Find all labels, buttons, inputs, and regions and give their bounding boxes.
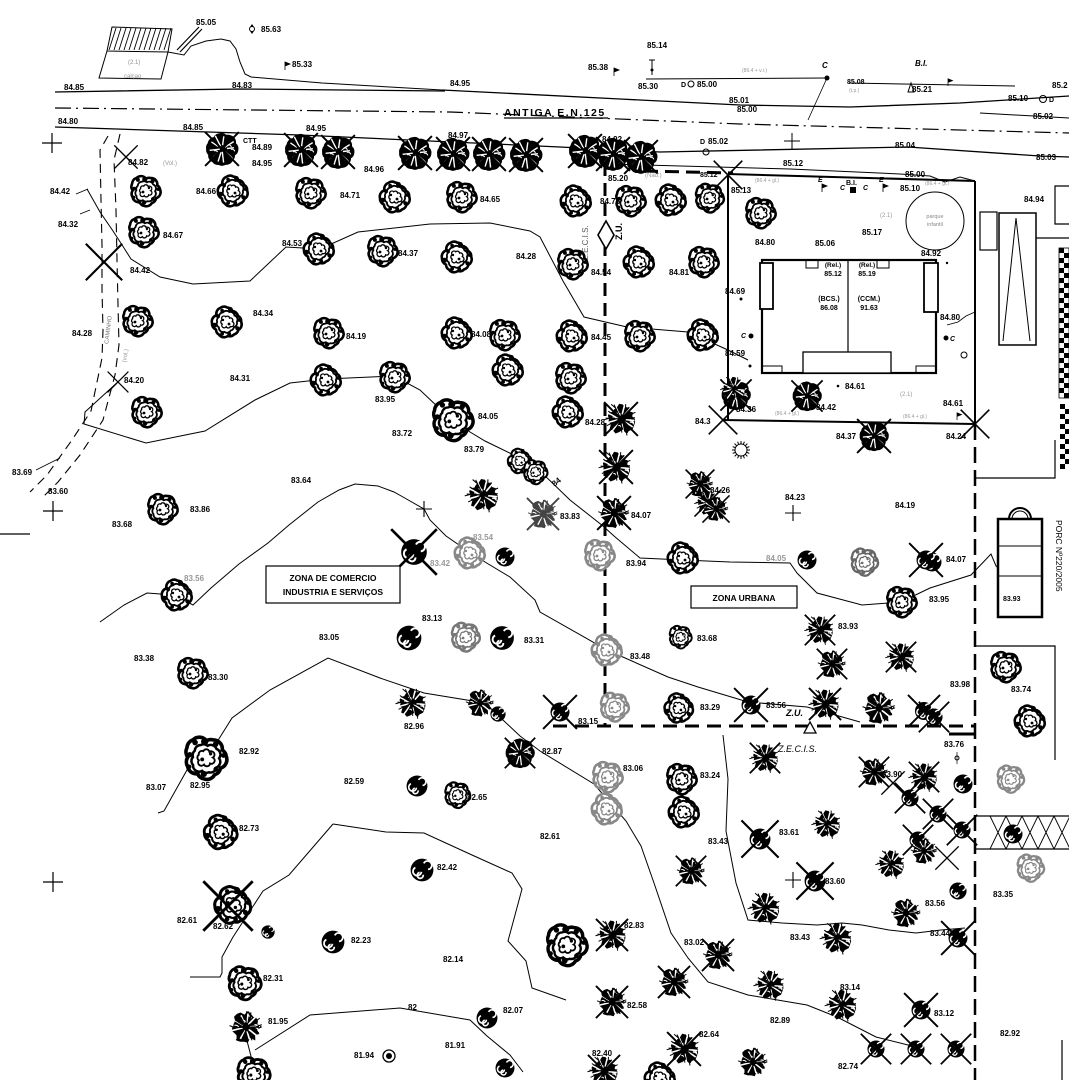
svg-text:84.89: 84.89 [252, 143, 273, 152]
svg-text:84.92: 84.92 [921, 249, 942, 258]
svg-text:82.73: 82.73 [239, 824, 260, 833]
svg-text:84.23: 84.23 [785, 493, 806, 502]
svg-text:C: C [822, 61, 828, 70]
svg-text:81.94: 81.94 [354, 1051, 375, 1060]
svg-text:84.28: 84.28 [72, 329, 93, 338]
svg-text:ANTIGA E.N.125: ANTIGA E.N.125 [504, 107, 606, 119]
svg-text:83.68: 83.68 [697, 634, 718, 643]
svg-text:84.05: 84.05 [478, 412, 499, 421]
svg-text:85.12: 85.12 [824, 271, 842, 278]
svg-text:84.83: 84.83 [232, 81, 253, 90]
svg-text:84.45: 84.45 [591, 333, 612, 342]
svg-text:83.35: 83.35 [993, 890, 1014, 899]
svg-text:84.24: 84.24 [946, 432, 967, 441]
svg-text:ZONA URBANA: ZONA URBANA [713, 593, 776, 603]
svg-text:82.89: 82.89 [770, 1016, 791, 1025]
svg-text:81.91: 81.91 [445, 1041, 466, 1050]
svg-text:83.48: 83.48 [630, 652, 651, 661]
svg-text:85.33: 85.33 [292, 60, 313, 69]
svg-text:84.95: 84.95 [306, 124, 327, 133]
svg-text:83.93: 83.93 [1003, 596, 1021, 603]
svg-text:(CCM.): (CCM.) [858, 296, 881, 303]
svg-text:85.00: 85.00 [905, 170, 926, 179]
svg-text:84.80: 84.80 [940, 313, 961, 322]
svg-text:83.38: 83.38 [134, 654, 155, 663]
svg-text:(BCS.): (BCS.) [818, 296, 839, 303]
svg-text:85.06: 85.06 [815, 239, 836, 248]
svg-text:D: D [1049, 97, 1054, 104]
svg-text:84.59: 84.59 [725, 349, 746, 358]
svg-text:84.05: 84.05 [766, 554, 787, 563]
svg-text:83.95: 83.95 [929, 595, 950, 604]
svg-text:84.54: 84.54 [591, 268, 612, 277]
svg-text:82.87: 82.87 [542, 747, 563, 756]
svg-text:ZONA DE COMERCIO: ZONA DE COMERCIO [289, 573, 376, 583]
svg-text:84.95: 84.95 [252, 159, 273, 168]
svg-text:82.74: 82.74 [838, 1062, 859, 1071]
svg-text:84.96: 84.96 [364, 165, 385, 174]
svg-text:85.21: 85.21 [912, 85, 933, 94]
svg-text:83.56: 83.56 [184, 574, 205, 583]
svg-text:84.85: 84.85 [64, 83, 85, 92]
svg-text:(86.4 + gl.): (86.4 + gl.) [755, 178, 779, 184]
svg-text:84.65: 84.65 [480, 195, 501, 204]
svg-text:83.24: 83.24 [700, 771, 721, 780]
svg-text:84.80: 84.80 [58, 117, 79, 126]
svg-text:83.61: 83.61 [779, 828, 800, 837]
svg-text:85.63: 85.63 [261, 25, 282, 34]
svg-text:83.43: 83.43 [708, 837, 729, 846]
svg-text:82.58: 82.58 [627, 1001, 648, 1010]
svg-text:83.64: 83.64 [291, 476, 312, 485]
svg-text:85.04: 85.04 [895, 141, 916, 150]
svg-text:85.03: 85.03 [1036, 153, 1057, 162]
svg-text:82.64: 82.64 [699, 1030, 720, 1039]
svg-text:84.07: 84.07 [946, 555, 967, 564]
svg-text:83.15: 83.15 [578, 717, 599, 726]
svg-text:85.00: 85.00 [737, 105, 758, 114]
svg-text:83.14: 83.14 [840, 983, 861, 992]
svg-text:83.43: 83.43 [790, 933, 811, 942]
svg-text:84.32: 84.32 [58, 220, 79, 229]
svg-text:85.20: 85.20 [608, 174, 629, 183]
svg-text:83.83: 83.83 [560, 512, 581, 521]
svg-text:B.I.: B.I. [846, 180, 857, 187]
svg-text:82.96: 82.96 [404, 722, 425, 731]
svg-text:84.61: 84.61 [845, 382, 866, 391]
svg-text:82.07: 82.07 [503, 1006, 524, 1015]
svg-text:(Rel.): (Rel.) [859, 262, 875, 269]
svg-text:D: D [700, 139, 705, 146]
svg-text:83.69: 83.69 [12, 468, 33, 477]
svg-text:84.42: 84.42 [50, 187, 71, 196]
svg-text:81.95: 81.95 [268, 1017, 289, 1026]
svg-text:PORC Nº220/2005: PORC Nº220/2005 [1054, 520, 1064, 592]
svg-text:Z.U.: Z.U. [614, 223, 624, 240]
svg-text:83.31: 83.31 [524, 636, 545, 645]
svg-text:83.95: 83.95 [375, 395, 396, 404]
svg-text:calçao: calçao [124, 74, 142, 80]
svg-text:82.92: 82.92 [1000, 1029, 1021, 1038]
svg-text:83.13: 83.13 [422, 614, 443, 623]
svg-text:84.67: 84.67 [163, 231, 184, 240]
svg-text:85.2: 85.2 [1052, 81, 1068, 90]
svg-text:83.93: 83.93 [838, 622, 859, 631]
svg-text:83.86: 83.86 [190, 505, 211, 514]
svg-text:84.26: 84.26 [710, 486, 731, 495]
svg-text:B.I.: B.I. [915, 59, 927, 68]
svg-text:infantil: infantil [927, 222, 943, 228]
svg-text:82.65: 82.65 [467, 793, 488, 802]
svg-text:83.56: 83.56 [766, 701, 787, 710]
svg-text:85.12: 85.12 [783, 159, 804, 168]
svg-text:83.30: 83.30 [208, 673, 229, 682]
svg-text:parque: parque [926, 214, 943, 220]
svg-text:85.30: 85.30 [638, 82, 659, 91]
svg-text:84.92: 84.92 [602, 135, 623, 144]
svg-text:(t.p.): (t.p.) [849, 88, 860, 94]
svg-text:85.02: 85.02 [708, 137, 729, 146]
svg-text:84.95: 84.95 [450, 79, 471, 88]
svg-text:84.28: 84.28 [516, 252, 537, 261]
svg-text:83.76: 83.76 [944, 740, 965, 749]
svg-text:85.19: 85.19 [858, 271, 876, 278]
svg-text:85.00: 85.00 [697, 80, 718, 89]
svg-text:(86.4 + gl.): (86.4 + gl.) [903, 414, 927, 420]
svg-text:(2.1): (2.1) [880, 213, 892, 219]
svg-text:Z.E.C.I.S.: Z.E.C.I.S. [777, 744, 817, 754]
svg-text:84.37: 84.37 [398, 249, 419, 258]
svg-text:84.66: 84.66 [196, 187, 217, 196]
svg-text:83.07: 83.07 [146, 783, 167, 792]
svg-text:82.61: 82.61 [177, 916, 198, 925]
svg-text:84.34: 84.34 [253, 309, 274, 318]
svg-text:83.02: 83.02 [684, 938, 705, 947]
svg-text:84.31: 84.31 [230, 374, 251, 383]
svg-text:85.12: 85.12 [700, 172, 718, 179]
svg-text:83.54: 83.54 [473, 533, 494, 542]
svg-text:85.13: 85.13 [731, 186, 752, 195]
svg-text:84.3: 84.3 [695, 417, 711, 426]
svg-text:82: 82 [408, 1003, 417, 1012]
svg-text:83.56: 83.56 [925, 899, 946, 908]
svg-text:82.95: 82.95 [190, 781, 211, 790]
svg-text:82.40: 82.40 [592, 1049, 613, 1058]
svg-text:(Vol.): (Vol.) [163, 161, 177, 167]
svg-text:(86.4 + v.r.): (86.4 + v.r.) [742, 68, 767, 74]
svg-text:(86.4 + gl.): (86.4 + gl.) [925, 181, 949, 187]
svg-text:(86.4 + gl.): (86.4 + gl.) [775, 411, 799, 417]
svg-text:84.08: 84.08 [471, 330, 492, 339]
svg-text:84.71: 84.71 [340, 191, 361, 200]
svg-text:83.94: 83.94 [626, 559, 647, 568]
svg-text:83.29: 83.29 [700, 703, 721, 712]
svg-text:82.62: 82.62 [213, 922, 234, 931]
svg-text:83.44: 83.44 [930, 929, 951, 938]
svg-text:85.10: 85.10 [900, 184, 921, 193]
svg-text:84.94: 84.94 [1024, 195, 1045, 204]
svg-text:84.61: 84.61 [943, 399, 964, 408]
svg-text:(2.1): (2.1) [900, 392, 912, 398]
svg-text:84.19: 84.19 [895, 501, 916, 510]
svg-text:85.05: 85.05 [196, 18, 217, 27]
svg-text:86.08: 86.08 [820, 305, 838, 312]
svg-text:84.80: 84.80 [755, 238, 776, 247]
svg-text:Z.U.: Z.U. [785, 708, 803, 718]
svg-text:82.83: 82.83 [624, 921, 645, 930]
svg-text:84.07: 84.07 [631, 511, 652, 520]
svg-text:82.92: 82.92 [239, 747, 260, 756]
svg-text:84.76: 84.76 [600, 197, 621, 206]
svg-text:82.42: 82.42 [437, 863, 458, 872]
svg-text:85.08: 85.08 [847, 79, 865, 86]
svg-text:83.72: 83.72 [392, 429, 413, 438]
svg-text:85.14: 85.14 [647, 41, 668, 50]
svg-text:84.42: 84.42 [130, 266, 151, 275]
svg-text:83.60: 83.60 [825, 877, 846, 886]
svg-text:84.85: 84.85 [183, 123, 204, 132]
svg-text:84.20: 84.20 [124, 376, 145, 385]
svg-text:E: E [818, 177, 823, 184]
svg-text:83.06: 83.06 [623, 764, 644, 773]
svg-text:85.01: 85.01 [729, 96, 750, 105]
svg-text:83.42: 83.42 [430, 559, 451, 568]
svg-text:(Nad.): (Nad.) [645, 173, 662, 179]
svg-text:85.17: 85.17 [862, 228, 883, 237]
svg-text:82.59: 82.59 [344, 777, 365, 786]
svg-text:84.28: 84.28 [585, 418, 606, 427]
svg-text:82.31: 82.31 [263, 974, 284, 983]
svg-text:82.61: 82.61 [540, 832, 561, 841]
svg-text:83.79: 83.79 [464, 445, 485, 454]
svg-text:D: D [681, 82, 686, 89]
svg-text:(Rel.): (Rel.) [825, 262, 841, 269]
svg-text:84.97: 84.97 [448, 131, 469, 140]
svg-text:84.19: 84.19 [346, 332, 367, 341]
svg-text:84.53: 84.53 [282, 239, 303, 248]
svg-text:82.23: 82.23 [351, 936, 372, 945]
svg-text:83.98: 83.98 [950, 680, 971, 689]
svg-text:(2.1): (2.1) [128, 60, 140, 66]
svg-text:INDUSTRIA E SERVIÇOS: INDUSTRIA E SERVIÇOS [283, 587, 383, 597]
svg-text:83.05: 83.05 [319, 633, 340, 642]
svg-text:91.63: 91.63 [860, 305, 878, 312]
svg-text:85.10: 85.10 [1008, 94, 1029, 103]
svg-text:83.74: 83.74 [1011, 685, 1032, 694]
svg-text:83.12: 83.12 [934, 1009, 955, 1018]
svg-text:83.68: 83.68 [112, 520, 133, 529]
svg-text:82.14: 82.14 [443, 955, 464, 964]
svg-text:84.69: 84.69 [725, 287, 746, 296]
svg-text:84.81: 84.81 [669, 268, 690, 277]
svg-text:E: E [879, 177, 884, 184]
svg-text:85.38: 85.38 [588, 63, 609, 72]
svg-text:84.37: 84.37 [836, 432, 857, 441]
svg-text:83.60: 83.60 [48, 487, 69, 496]
